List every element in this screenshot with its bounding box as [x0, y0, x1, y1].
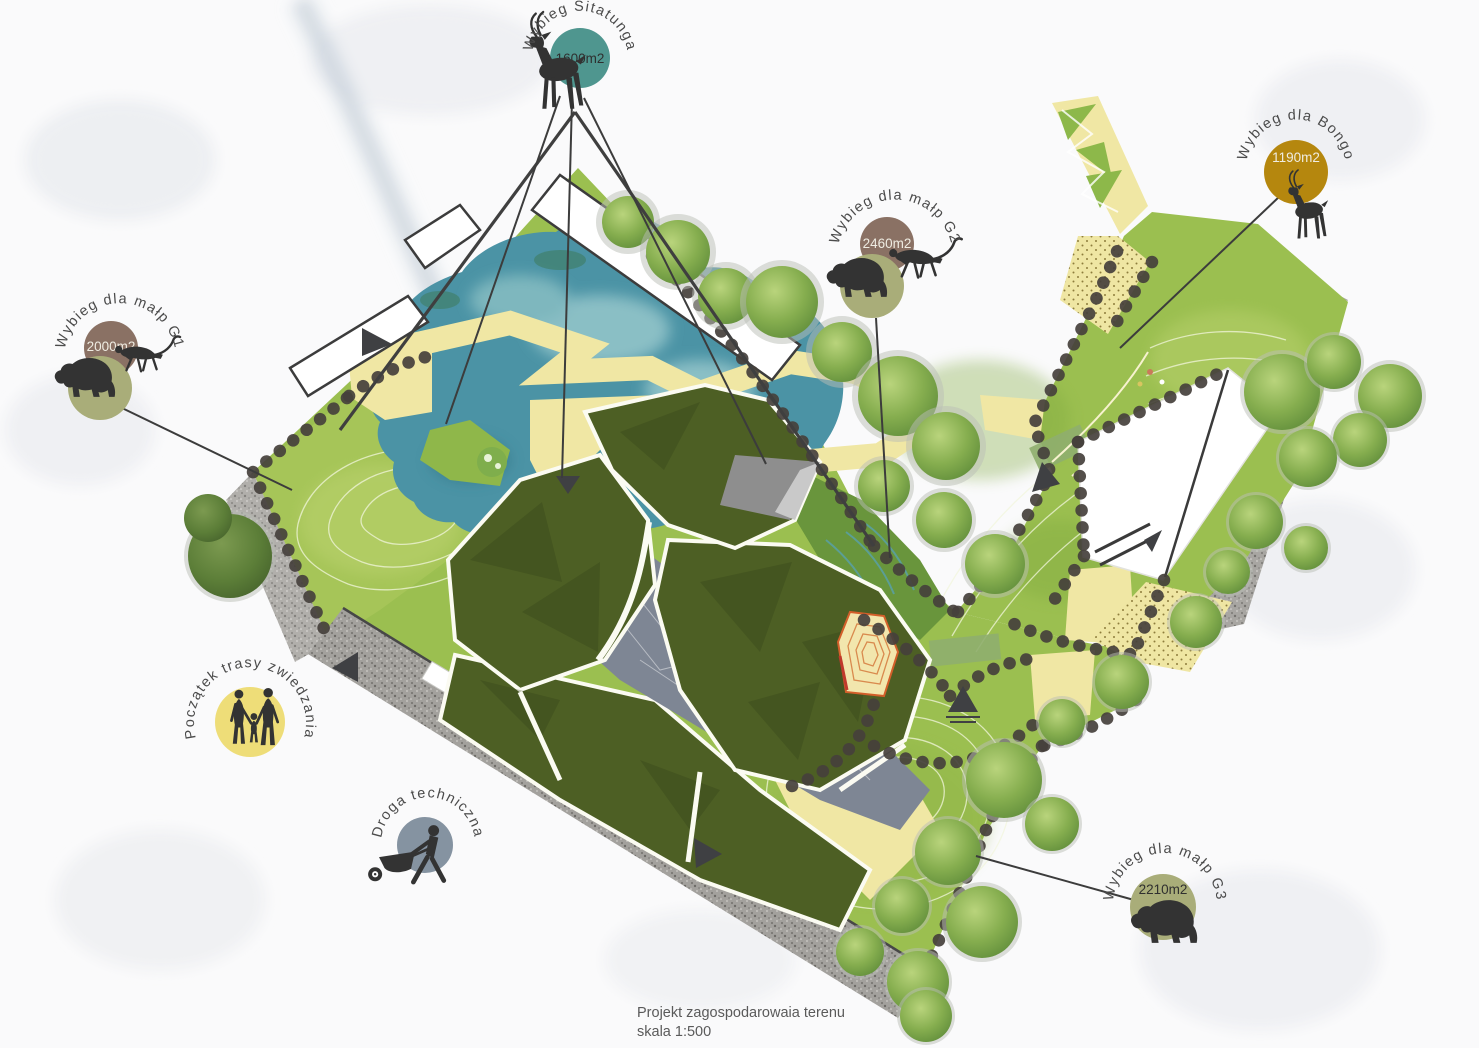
- zigzag-ramp: [1052, 96, 1148, 234]
- label-service-road: Droga techniczna: [368, 785, 486, 882]
- site-plan-sheet: 1600m2 Wybieg Sitatunga 1190m2 Wybieg dl…: [0, 0, 1479, 1048]
- label-monkeys-g1: 2000m2 Wybieg dla małp G1: [53, 291, 187, 420]
- label-route-start: Początek trasy zwiedzania: [182, 655, 318, 757]
- area-value: 2210m2: [1139, 882, 1188, 897]
- area-value: 2460m2: [863, 236, 912, 251]
- caption: Projekt zagospodarowaia terenu skala 1:5…: [637, 1005, 845, 1040]
- caption-line1: Projekt zagospodarowaia terenu: [637, 1005, 845, 1021]
- caption-line2: skala 1:500: [637, 1024, 711, 1040]
- site-plan: 1600m2 Wybieg Sitatunga 1190m2 Wybieg dl…: [0, 0, 1479, 1048]
- area-value: 1190m2: [1272, 150, 1320, 165]
- label-monkeys-g2: 2460m2 Wybieg dla małp G2: [827, 187, 963, 318]
- island-bush: [477, 447, 507, 477]
